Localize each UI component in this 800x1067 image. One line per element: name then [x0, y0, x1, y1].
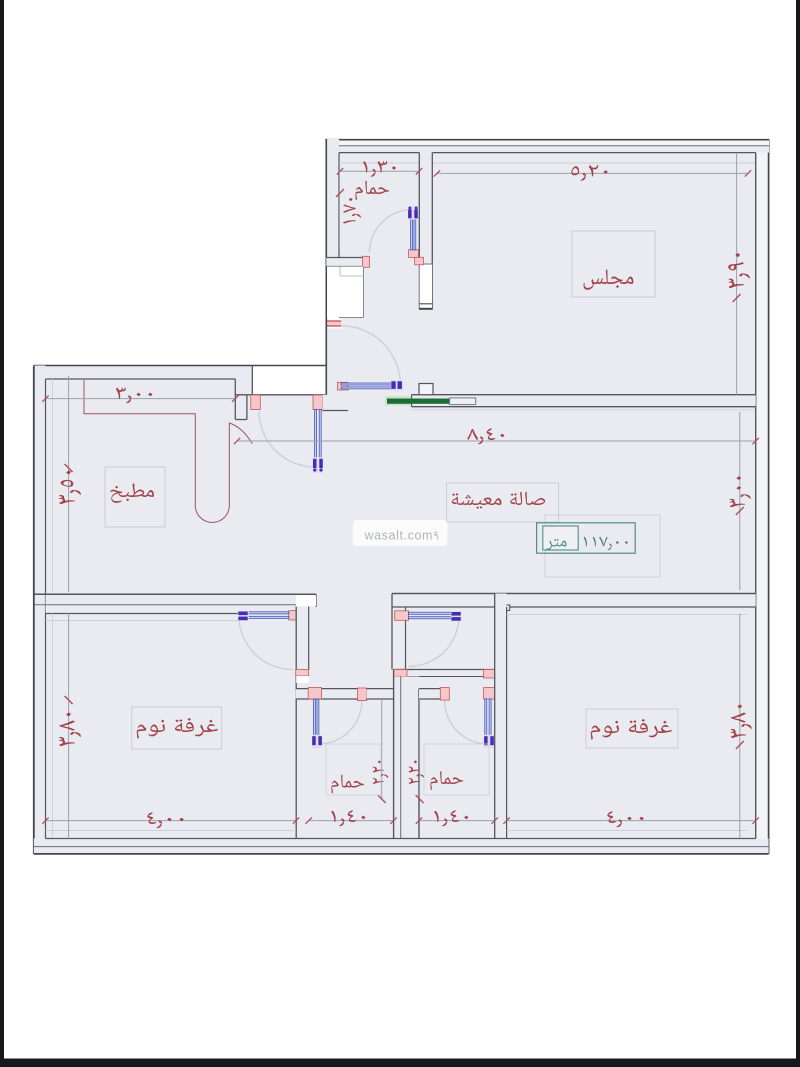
svg-text:wasalt.com: wasalt.com — [364, 529, 434, 543]
